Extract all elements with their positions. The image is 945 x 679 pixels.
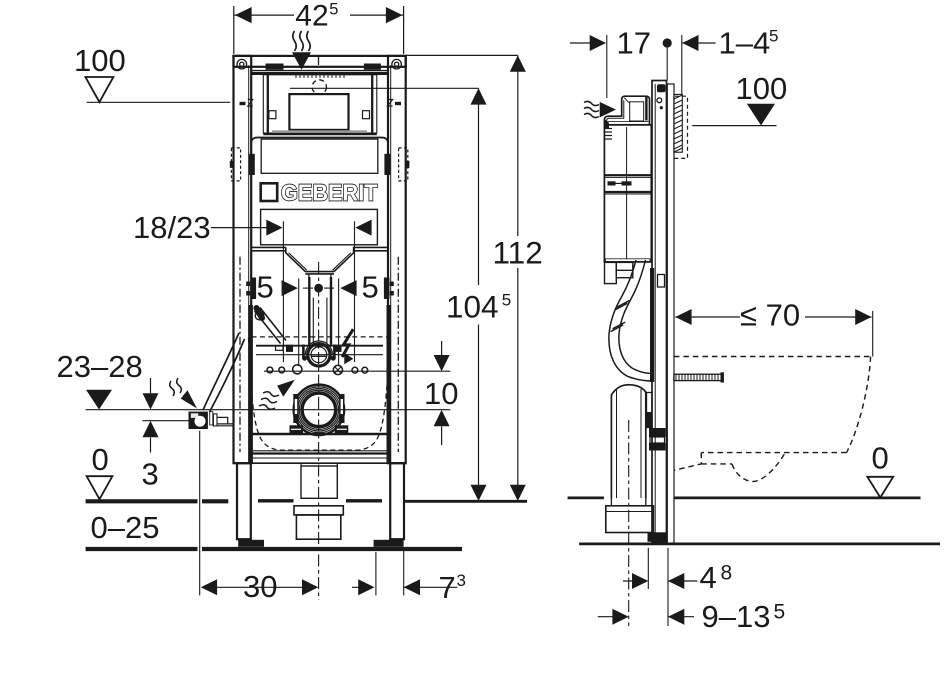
svg-text:0: 0 xyxy=(92,442,109,477)
svg-text:23–28: 23–28 xyxy=(57,349,143,384)
svg-text:5: 5 xyxy=(502,290,511,309)
svg-text:5: 5 xyxy=(769,27,778,46)
svg-text:42: 42 xyxy=(295,0,328,33)
svg-text:5: 5 xyxy=(329,0,338,18)
svg-text:3: 3 xyxy=(457,571,466,590)
svg-text:5: 5 xyxy=(362,269,379,304)
svg-text:10: 10 xyxy=(424,376,458,411)
svg-text:0: 0 xyxy=(872,441,889,476)
svg-text:0–25: 0–25 xyxy=(91,510,160,545)
svg-text:9–13: 9–13 xyxy=(702,599,771,634)
svg-text:3: 3 xyxy=(142,457,159,492)
svg-text:7: 7 xyxy=(439,570,456,605)
svg-text:GEBERIT: GEBERIT xyxy=(281,180,378,206)
svg-text:≤ 70: ≤ 70 xyxy=(740,298,800,333)
svg-text:30: 30 xyxy=(243,569,277,604)
svg-text:1–4: 1–4 xyxy=(719,26,771,61)
svg-text:104: 104 xyxy=(446,288,499,324)
svg-text:18/23: 18/23 xyxy=(133,210,211,245)
svg-text:100: 100 xyxy=(74,43,126,78)
svg-text:4: 4 xyxy=(700,560,717,595)
svg-text:8: 8 xyxy=(721,562,733,585)
svg-text:100: 100 xyxy=(736,71,788,106)
svg-text:5: 5 xyxy=(257,269,274,304)
svg-text:17: 17 xyxy=(617,26,651,61)
svg-text:5: 5 xyxy=(774,601,786,624)
svg-text:112: 112 xyxy=(493,235,543,271)
